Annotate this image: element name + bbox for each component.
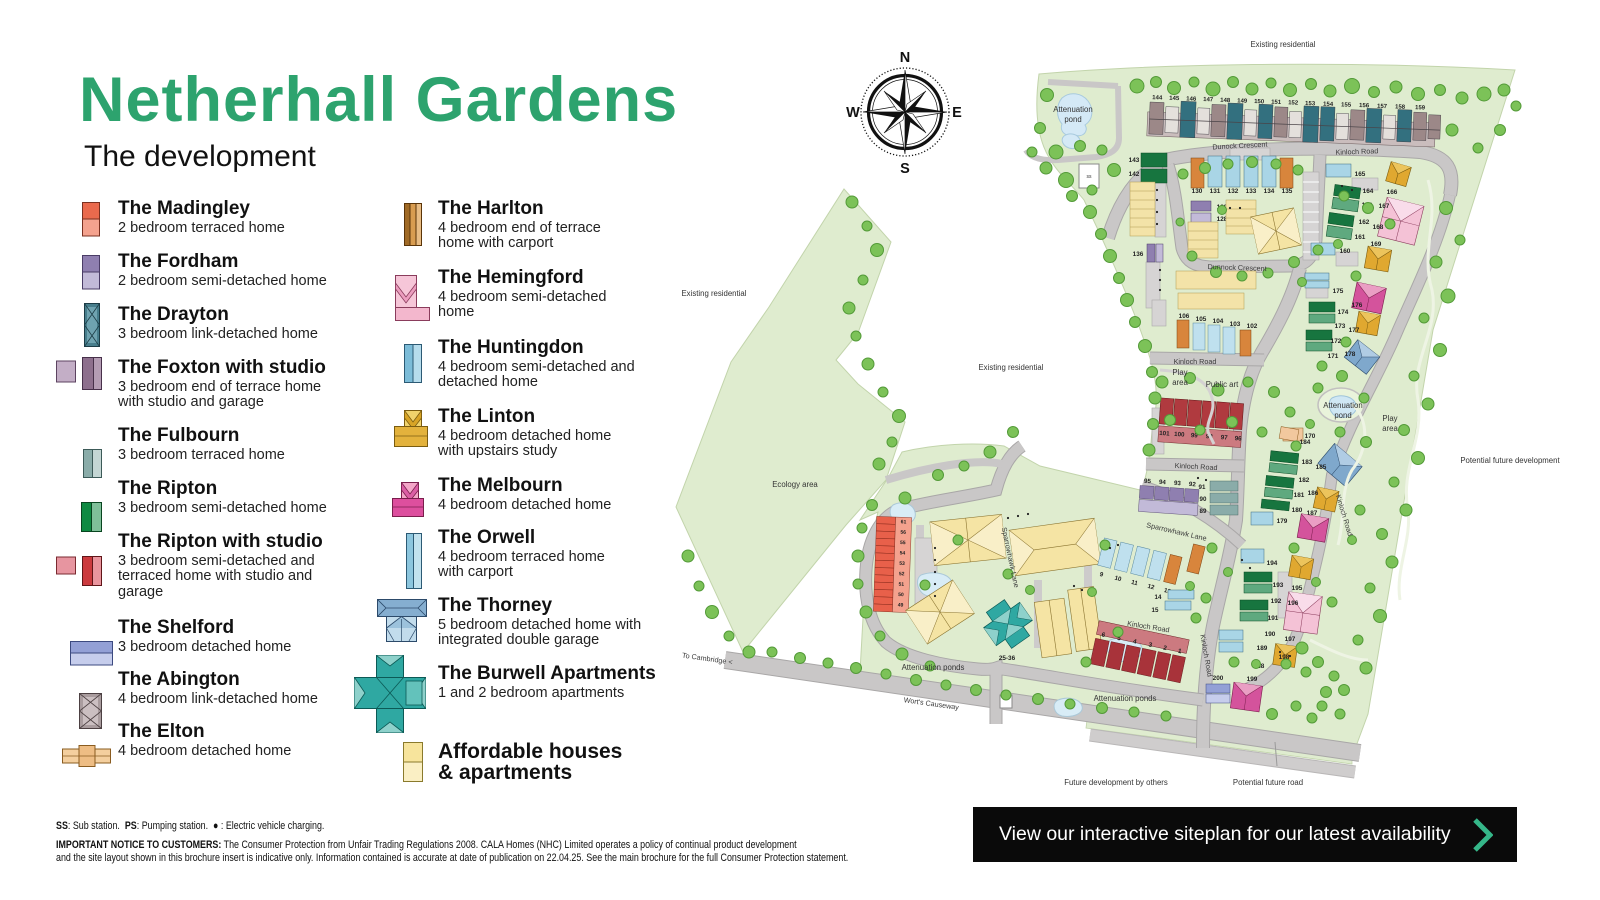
svg-text:186: 186 — [1308, 490, 1319, 497]
svg-text:174: 174 — [1338, 309, 1349, 316]
svg-text:W: W — [846, 105, 860, 121]
svg-text:103: 103 — [1230, 321, 1241, 328]
svg-text:162: 162 — [1359, 219, 1370, 226]
svg-text:49: 49 — [898, 602, 904, 608]
svg-text:136: 136 — [1133, 251, 1144, 258]
svg-text:199: 199 — [1247, 676, 1258, 683]
svg-text:191: 191 — [1268, 615, 1279, 622]
svg-text:15: 15 — [1152, 607, 1159, 614]
svg-text:Play: Play — [1172, 368, 1187, 377]
svg-text:172: 172 — [1331, 338, 1342, 345]
svg-text:200: 200 — [1213, 675, 1224, 682]
svg-text:156: 156 — [1359, 103, 1370, 109]
svg-text:173: 173 — [1335, 323, 1346, 330]
svg-text:Play: Play — [1382, 414, 1397, 423]
svg-text:194: 194 — [1267, 560, 1278, 567]
svg-text:N: N — [900, 50, 910, 66]
svg-text:152: 152 — [1288, 100, 1299, 106]
svg-text:146: 146 — [1186, 96, 1197, 102]
svg-text:197: 197 — [1285, 636, 1296, 643]
svg-text:55: 55 — [900, 540, 906, 546]
svg-text:178: 178 — [1345, 351, 1356, 358]
svg-text:97: 97 — [1221, 434, 1229, 442]
svg-text:89: 89 — [1200, 508, 1207, 515]
svg-text:132: 132 — [1228, 188, 1239, 195]
svg-text:Attenuation: Attenuation — [1053, 105, 1092, 114]
svg-text:50: 50 — [898, 592, 904, 598]
svg-text:180: 180 — [1292, 507, 1303, 514]
svg-text:pond: pond — [1334, 411, 1351, 420]
svg-text:168: 168 — [1373, 224, 1384, 231]
svg-text:164: 164 — [1363, 188, 1374, 195]
svg-text:Attenuation ponds: Attenuation ponds — [902, 663, 965, 672]
svg-text:133: 133 — [1246, 188, 1257, 195]
svg-text:101: 101 — [1159, 430, 1170, 438]
svg-text:193: 193 — [1273, 582, 1284, 589]
svg-text:ss: ss — [1087, 174, 1093, 180]
svg-text:52: 52 — [899, 571, 905, 577]
svg-text:Future development by others: Future development by others — [1064, 778, 1168, 787]
svg-text:142: 142 — [1129, 171, 1140, 178]
svg-text:61: 61 — [901, 519, 907, 525]
svg-text:56: 56 — [900, 530, 906, 536]
svg-text:147: 147 — [1203, 97, 1214, 103]
svg-text:Potential future development: Potential future development — [1460, 456, 1560, 465]
svg-text:Kinloch Road: Kinloch Road — [1174, 357, 1217, 366]
svg-text:93: 93 — [1174, 480, 1182, 488]
svg-text:14: 14 — [1155, 594, 1162, 601]
svg-text:144: 144 — [1152, 95, 1163, 101]
svg-text:157: 157 — [1377, 104, 1388, 110]
svg-text:149: 149 — [1237, 98, 1248, 104]
svg-text:155: 155 — [1341, 102, 1352, 108]
svg-text:181: 181 — [1294, 492, 1305, 499]
svg-text:94: 94 — [1159, 479, 1167, 487]
svg-text:area: area — [1172, 378, 1188, 387]
svg-text:53: 53 — [899, 561, 905, 567]
svg-text:92: 92 — [1189, 481, 1197, 489]
svg-text:150: 150 — [1254, 99, 1265, 105]
svg-text:167: 167 — [1379, 203, 1390, 210]
svg-text:165: 165 — [1355, 171, 1366, 178]
svg-text:154: 154 — [1323, 102, 1334, 108]
svg-text:135: 135 — [1282, 188, 1293, 195]
svg-text:E: E — [952, 105, 962, 121]
svg-text:90: 90 — [1200, 496, 1207, 503]
svg-text:Public art: Public art — [1206, 380, 1239, 389]
svg-text:Attenuation ponds: Attenuation ponds — [1094, 694, 1157, 703]
svg-text:160: 160 — [1340, 248, 1351, 255]
svg-text:176: 176 — [1352, 302, 1363, 309]
svg-text:Attenuation: Attenuation — [1323, 401, 1362, 410]
svg-text:pond: pond — [1064, 115, 1081, 124]
svg-text:54: 54 — [900, 550, 906, 556]
svg-text:Existing residential: Existing residential — [1250, 40, 1315, 49]
svg-text:192: 192 — [1271, 598, 1282, 605]
svg-text:91: 91 — [1199, 484, 1206, 491]
svg-text:171: 171 — [1328, 353, 1339, 360]
svg-text:153: 153 — [1305, 101, 1316, 107]
svg-text:177: 177 — [1349, 327, 1360, 334]
svg-text:To Cambridge <: To Cambridge < — [682, 651, 734, 667]
svg-text:105: 105 — [1196, 316, 1207, 323]
svg-text:Ecology area: Ecology area — [772, 480, 818, 489]
svg-text:104: 104 — [1213, 318, 1224, 325]
svg-text:195: 195 — [1292, 585, 1303, 592]
svg-text:102: 102 — [1247, 323, 1258, 330]
svg-text:145: 145 — [1169, 96, 1180, 102]
svg-text:179: 179 — [1277, 518, 1288, 525]
svg-text:95: 95 — [1144, 478, 1152, 486]
svg-text:143: 143 — [1129, 157, 1140, 164]
svg-text:189: 189 — [1257, 645, 1268, 652]
svg-text:Potential future road: Potential future road — [1233, 778, 1303, 787]
svg-text:area: area — [1382, 424, 1398, 433]
svg-text:183: 183 — [1302, 459, 1313, 466]
svg-text:100: 100 — [1174, 431, 1185, 439]
svg-text:51: 51 — [898, 582, 904, 588]
svg-text:148: 148 — [1220, 98, 1231, 104]
svg-text:130: 130 — [1192, 188, 1203, 195]
svg-text:96: 96 — [1234, 435, 1242, 443]
svg-text:161: 161 — [1355, 234, 1366, 241]
svg-text:134: 134 — [1264, 188, 1275, 195]
svg-text:175: 175 — [1333, 288, 1344, 295]
svg-text:196: 196 — [1288, 600, 1299, 607]
svg-text:159: 159 — [1415, 105, 1426, 111]
svg-text:190: 190 — [1265, 631, 1276, 638]
svg-text:S: S — [900, 161, 910, 177]
svg-text:131: 131 — [1210, 188, 1221, 195]
svg-text:151: 151 — [1271, 100, 1282, 106]
svg-text:182: 182 — [1299, 477, 1310, 484]
svg-text:Kinloch Road: Kinloch Road — [1335, 146, 1378, 156]
svg-text:25-36: 25-36 — [999, 655, 1016, 662]
svg-text:Existing residential: Existing residential — [681, 289, 746, 298]
svg-text:Existing residential: Existing residential — [978, 363, 1043, 372]
svg-text:158: 158 — [1395, 104, 1406, 110]
svg-text:166: 166 — [1387, 189, 1398, 196]
svg-text:106: 106 — [1179, 313, 1190, 320]
svg-text:185: 185 — [1316, 464, 1327, 471]
